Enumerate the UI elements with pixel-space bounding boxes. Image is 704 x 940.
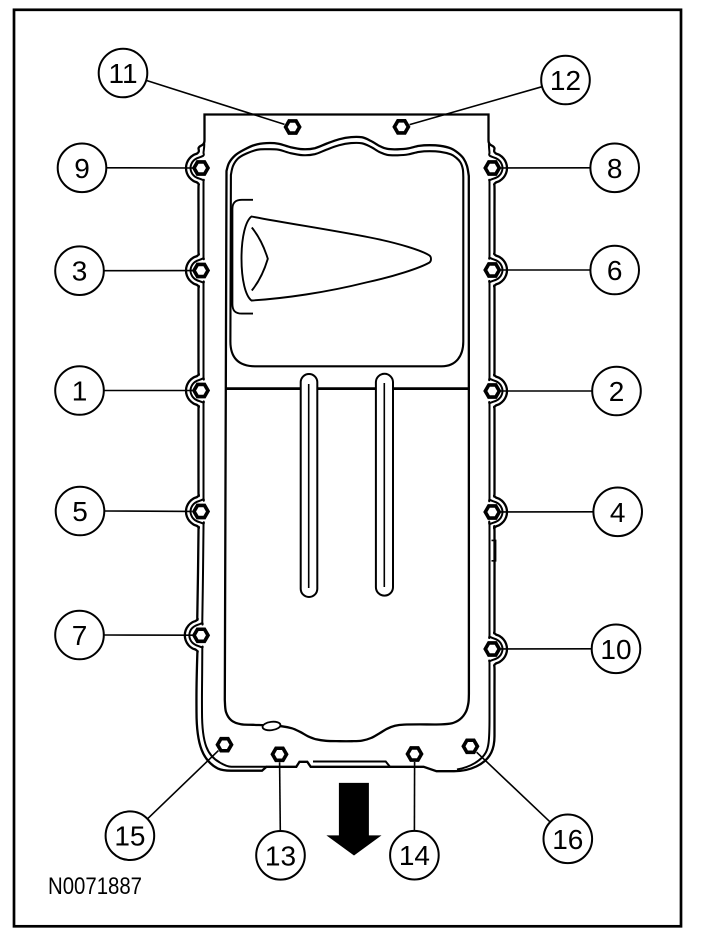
svg-text:6: 6	[607, 255, 623, 286]
svg-text:8: 8	[607, 153, 623, 184]
svg-text:4: 4	[610, 497, 626, 528]
svg-text:7: 7	[72, 620, 88, 651]
svg-text:15: 15	[114, 821, 145, 852]
svg-text:16: 16	[552, 824, 583, 855]
svg-text:10: 10	[600, 634, 631, 665]
svg-text:N0071887: N0071887	[48, 873, 142, 900]
svg-text:3: 3	[72, 256, 88, 287]
svg-text:2: 2	[609, 376, 625, 407]
svg-text:11: 11	[108, 58, 137, 89]
svg-text:13: 13	[265, 840, 296, 871]
svg-text:12: 12	[550, 65, 581, 96]
svg-text:5: 5	[72, 496, 88, 527]
svg-text:9: 9	[74, 153, 90, 184]
svg-text:1: 1	[72, 376, 88, 407]
svg-text:14: 14	[399, 840, 430, 871]
